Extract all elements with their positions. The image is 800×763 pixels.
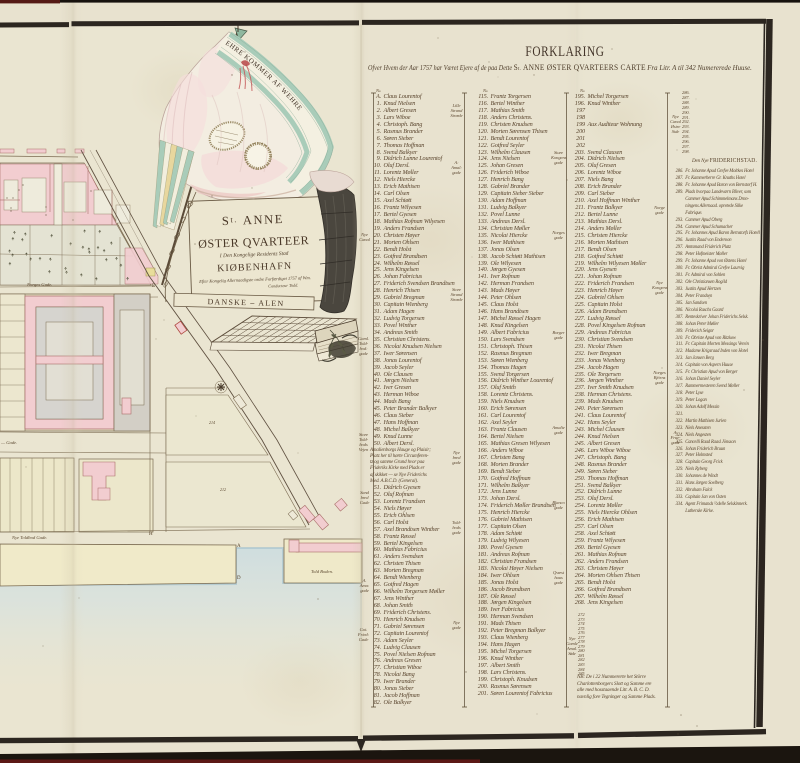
svg-text:Conducteur Todd.: Conducteur Todd. [268, 283, 298, 289]
